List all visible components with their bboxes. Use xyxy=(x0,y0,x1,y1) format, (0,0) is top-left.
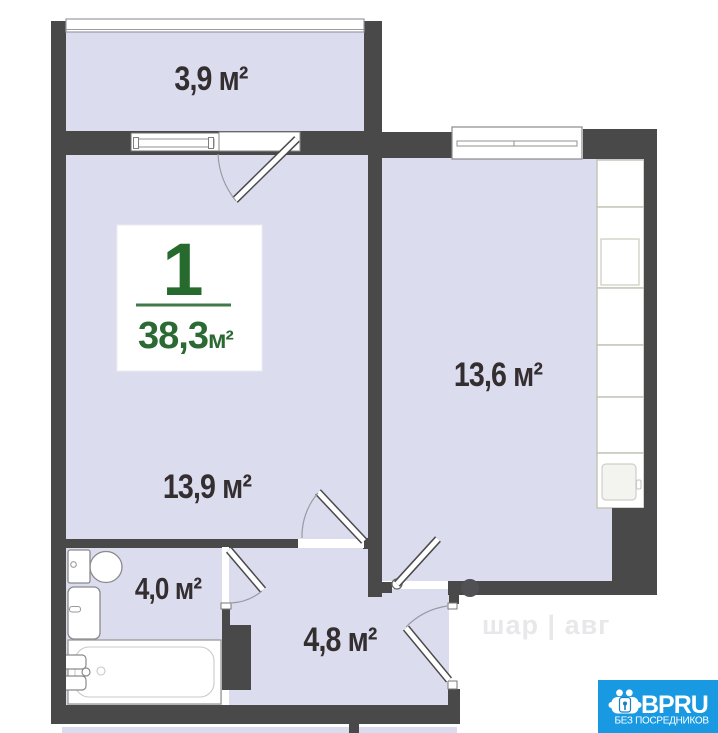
svg-text:БЕЗ ПОСРЕДНИКОВ: БЕЗ ПОСРЕДНИКОВ xyxy=(615,716,710,727)
svg-text:3,9 м²: 3,9 м² xyxy=(174,60,248,98)
svg-text:4,0 м²: 4,0 м² xyxy=(135,572,202,607)
svg-text:шар | авг: шар | авг xyxy=(482,610,610,640)
svg-text:1: 1 xyxy=(162,228,203,311)
svg-text:4,8 м²: 4,8 м² xyxy=(303,621,377,659)
svg-text:13,9 м²: 13,9 м² xyxy=(163,468,252,506)
svg-text:13,6 м²: 13,6 м² xyxy=(454,356,543,394)
